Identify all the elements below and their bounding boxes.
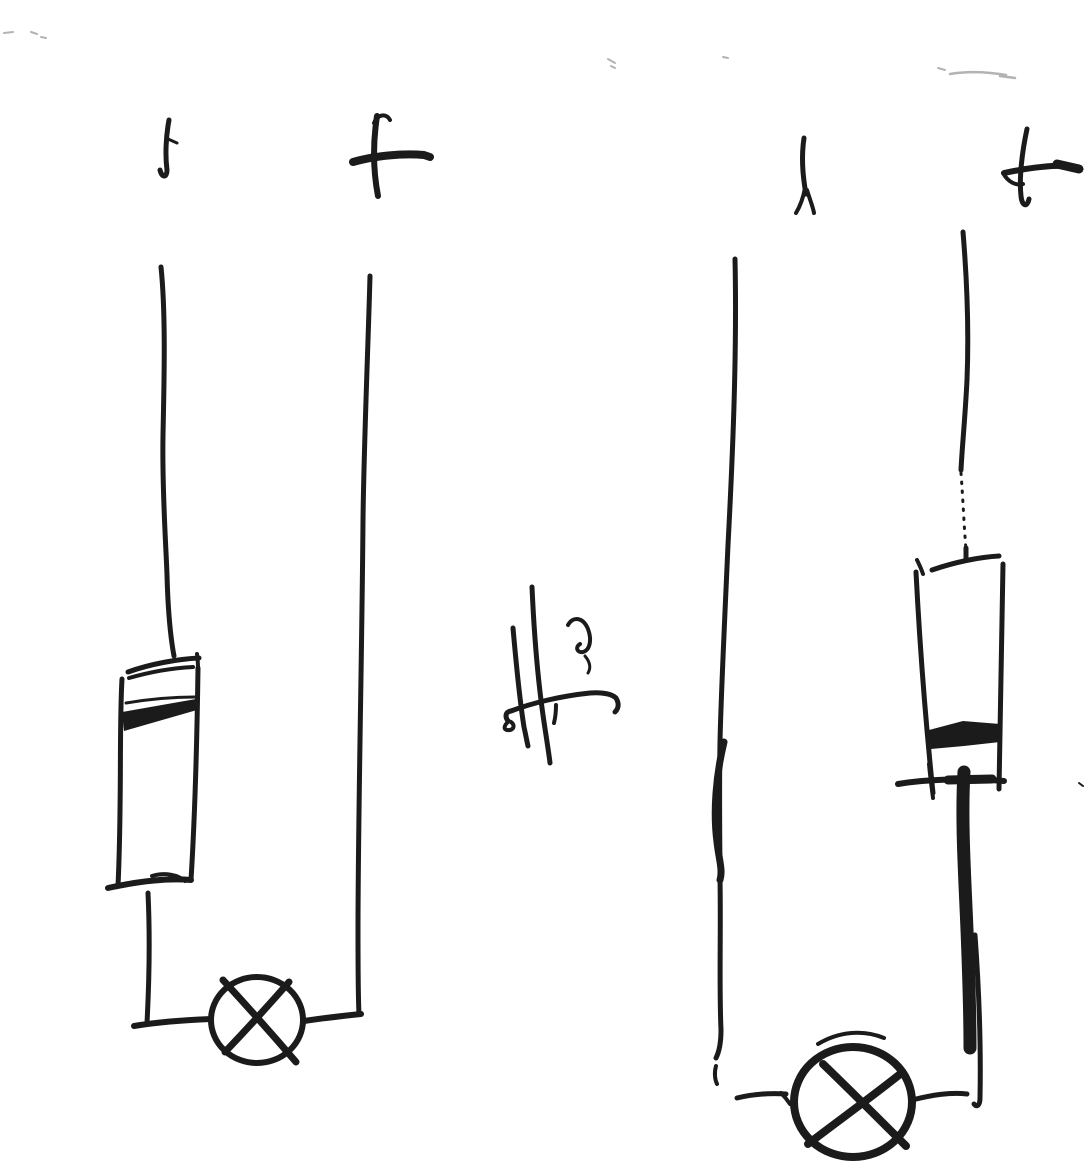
wire-positive <box>961 232 968 470</box>
minus-tick <box>168 139 177 143</box>
plus-terminal-mark <box>353 115 430 196</box>
minus-stroke <box>160 120 169 176</box>
lamp-symbol <box>794 1033 912 1157</box>
wire-negative <box>716 259 736 1058</box>
minus-flick <box>807 190 814 213</box>
minus-terminal-mark <box>796 138 814 213</box>
cell-right-edge <box>999 564 1003 789</box>
circuit-sketch <box>0 0 1092 1170</box>
minus-terminal-mark <box>160 120 177 176</box>
wire-negative <box>161 267 174 656</box>
right-circuit <box>715 129 1079 1157</box>
wire-positive <box>358 276 370 1014</box>
wire-lamp-right-connector <box>912 1093 967 1100</box>
minus-stroke <box>803 138 806 194</box>
speck <box>1000 76 1015 78</box>
lamp-circle-retrace <box>818 1033 884 1044</box>
annotation-slant-stroke <box>513 628 528 746</box>
cell-component <box>108 654 199 888</box>
plus-terminal-mark <box>1003 129 1079 205</box>
minus-flick <box>796 188 805 213</box>
speck <box>4 32 13 33</box>
lamp-cross-stroke <box>808 1075 899 1144</box>
speck <box>31 32 37 34</box>
annotation-left-curl <box>505 721 514 730</box>
cell-component <box>898 556 1004 798</box>
cell-top-edge <box>932 556 999 570</box>
wire-lamp-left-connector <box>737 1094 786 1098</box>
plus-horizontal <box>353 154 430 162</box>
lamp-symbol <box>211 976 303 1063</box>
lamp-cross-stroke <box>223 980 296 1062</box>
wire-cell-to-lamp <box>147 893 149 1023</box>
speck <box>938 68 945 70</box>
speck <box>41 37 46 38</box>
wire-positive-faint-segment <box>961 473 966 550</box>
wire-cell-to-lamp-heavy <box>963 772 970 1048</box>
sketch-page <box>0 0 1092 1170</box>
left-circuit <box>108 115 430 1063</box>
plus-horizontal-blob <box>1057 164 1079 169</box>
annotation-e-loop <box>568 619 590 652</box>
speck <box>950 72 1006 75</box>
plus-hook <box>374 115 390 123</box>
annotation-e-tail <box>585 656 590 673</box>
annotation-slant-stroke <box>532 587 550 763</box>
cell-left-edge <box>118 679 122 886</box>
handwritten-annotation <box>505 587 619 763</box>
annotation-tick <box>554 705 556 723</box>
wire-lamp-right-connector <box>304 1014 361 1021</box>
speck <box>1079 783 1083 786</box>
speck <box>608 59 615 63</box>
cell-dark-band <box>122 699 197 731</box>
speck <box>723 57 728 58</box>
wire-negative-flick <box>715 1066 717 1084</box>
cell-dark-band <box>929 721 1000 749</box>
speck <box>611 66 615 68</box>
cell-left-edge <box>916 572 933 793</box>
